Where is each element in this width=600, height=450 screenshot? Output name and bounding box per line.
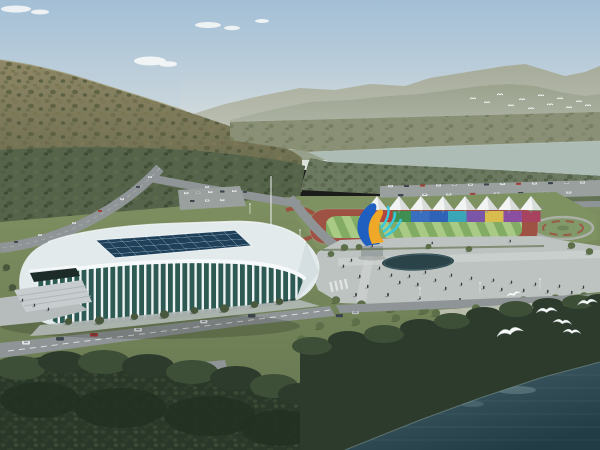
car xyxy=(580,181,585,183)
car xyxy=(14,241,18,243)
car xyxy=(500,183,505,185)
car xyxy=(404,185,409,187)
banner-panel xyxy=(448,211,467,222)
car xyxy=(516,183,521,185)
car xyxy=(208,191,213,193)
car xyxy=(564,182,569,184)
car xyxy=(120,198,124,200)
car xyxy=(484,183,489,185)
car xyxy=(420,184,425,186)
banner-panel xyxy=(430,211,449,222)
car xyxy=(205,186,209,188)
left-parking-lot xyxy=(178,186,246,210)
car xyxy=(468,184,473,186)
car xyxy=(388,185,393,187)
car xyxy=(56,337,64,341)
car xyxy=(232,190,237,192)
car xyxy=(220,199,225,201)
car xyxy=(148,176,152,178)
car xyxy=(398,194,403,196)
aerial-rendering-stadium-complex xyxy=(0,0,600,450)
car xyxy=(205,200,210,202)
car xyxy=(72,222,76,224)
car xyxy=(98,210,102,212)
banner-panel xyxy=(467,211,486,222)
car xyxy=(446,193,451,195)
car xyxy=(38,234,42,236)
car xyxy=(22,341,30,345)
car xyxy=(184,192,189,194)
car xyxy=(243,191,247,193)
car xyxy=(220,191,225,193)
banner-panel xyxy=(411,211,430,222)
car xyxy=(336,314,343,317)
car xyxy=(136,186,140,188)
banner-panel xyxy=(485,211,504,222)
car xyxy=(190,200,195,202)
car xyxy=(352,311,359,314)
car xyxy=(436,184,441,186)
car xyxy=(452,184,457,186)
car xyxy=(422,194,427,196)
car xyxy=(566,191,571,193)
car xyxy=(548,182,553,184)
garden-circle xyxy=(533,217,593,239)
car xyxy=(196,192,201,194)
car xyxy=(532,182,537,184)
banner-panel xyxy=(504,211,523,222)
sculpture-shadow xyxy=(358,256,386,261)
